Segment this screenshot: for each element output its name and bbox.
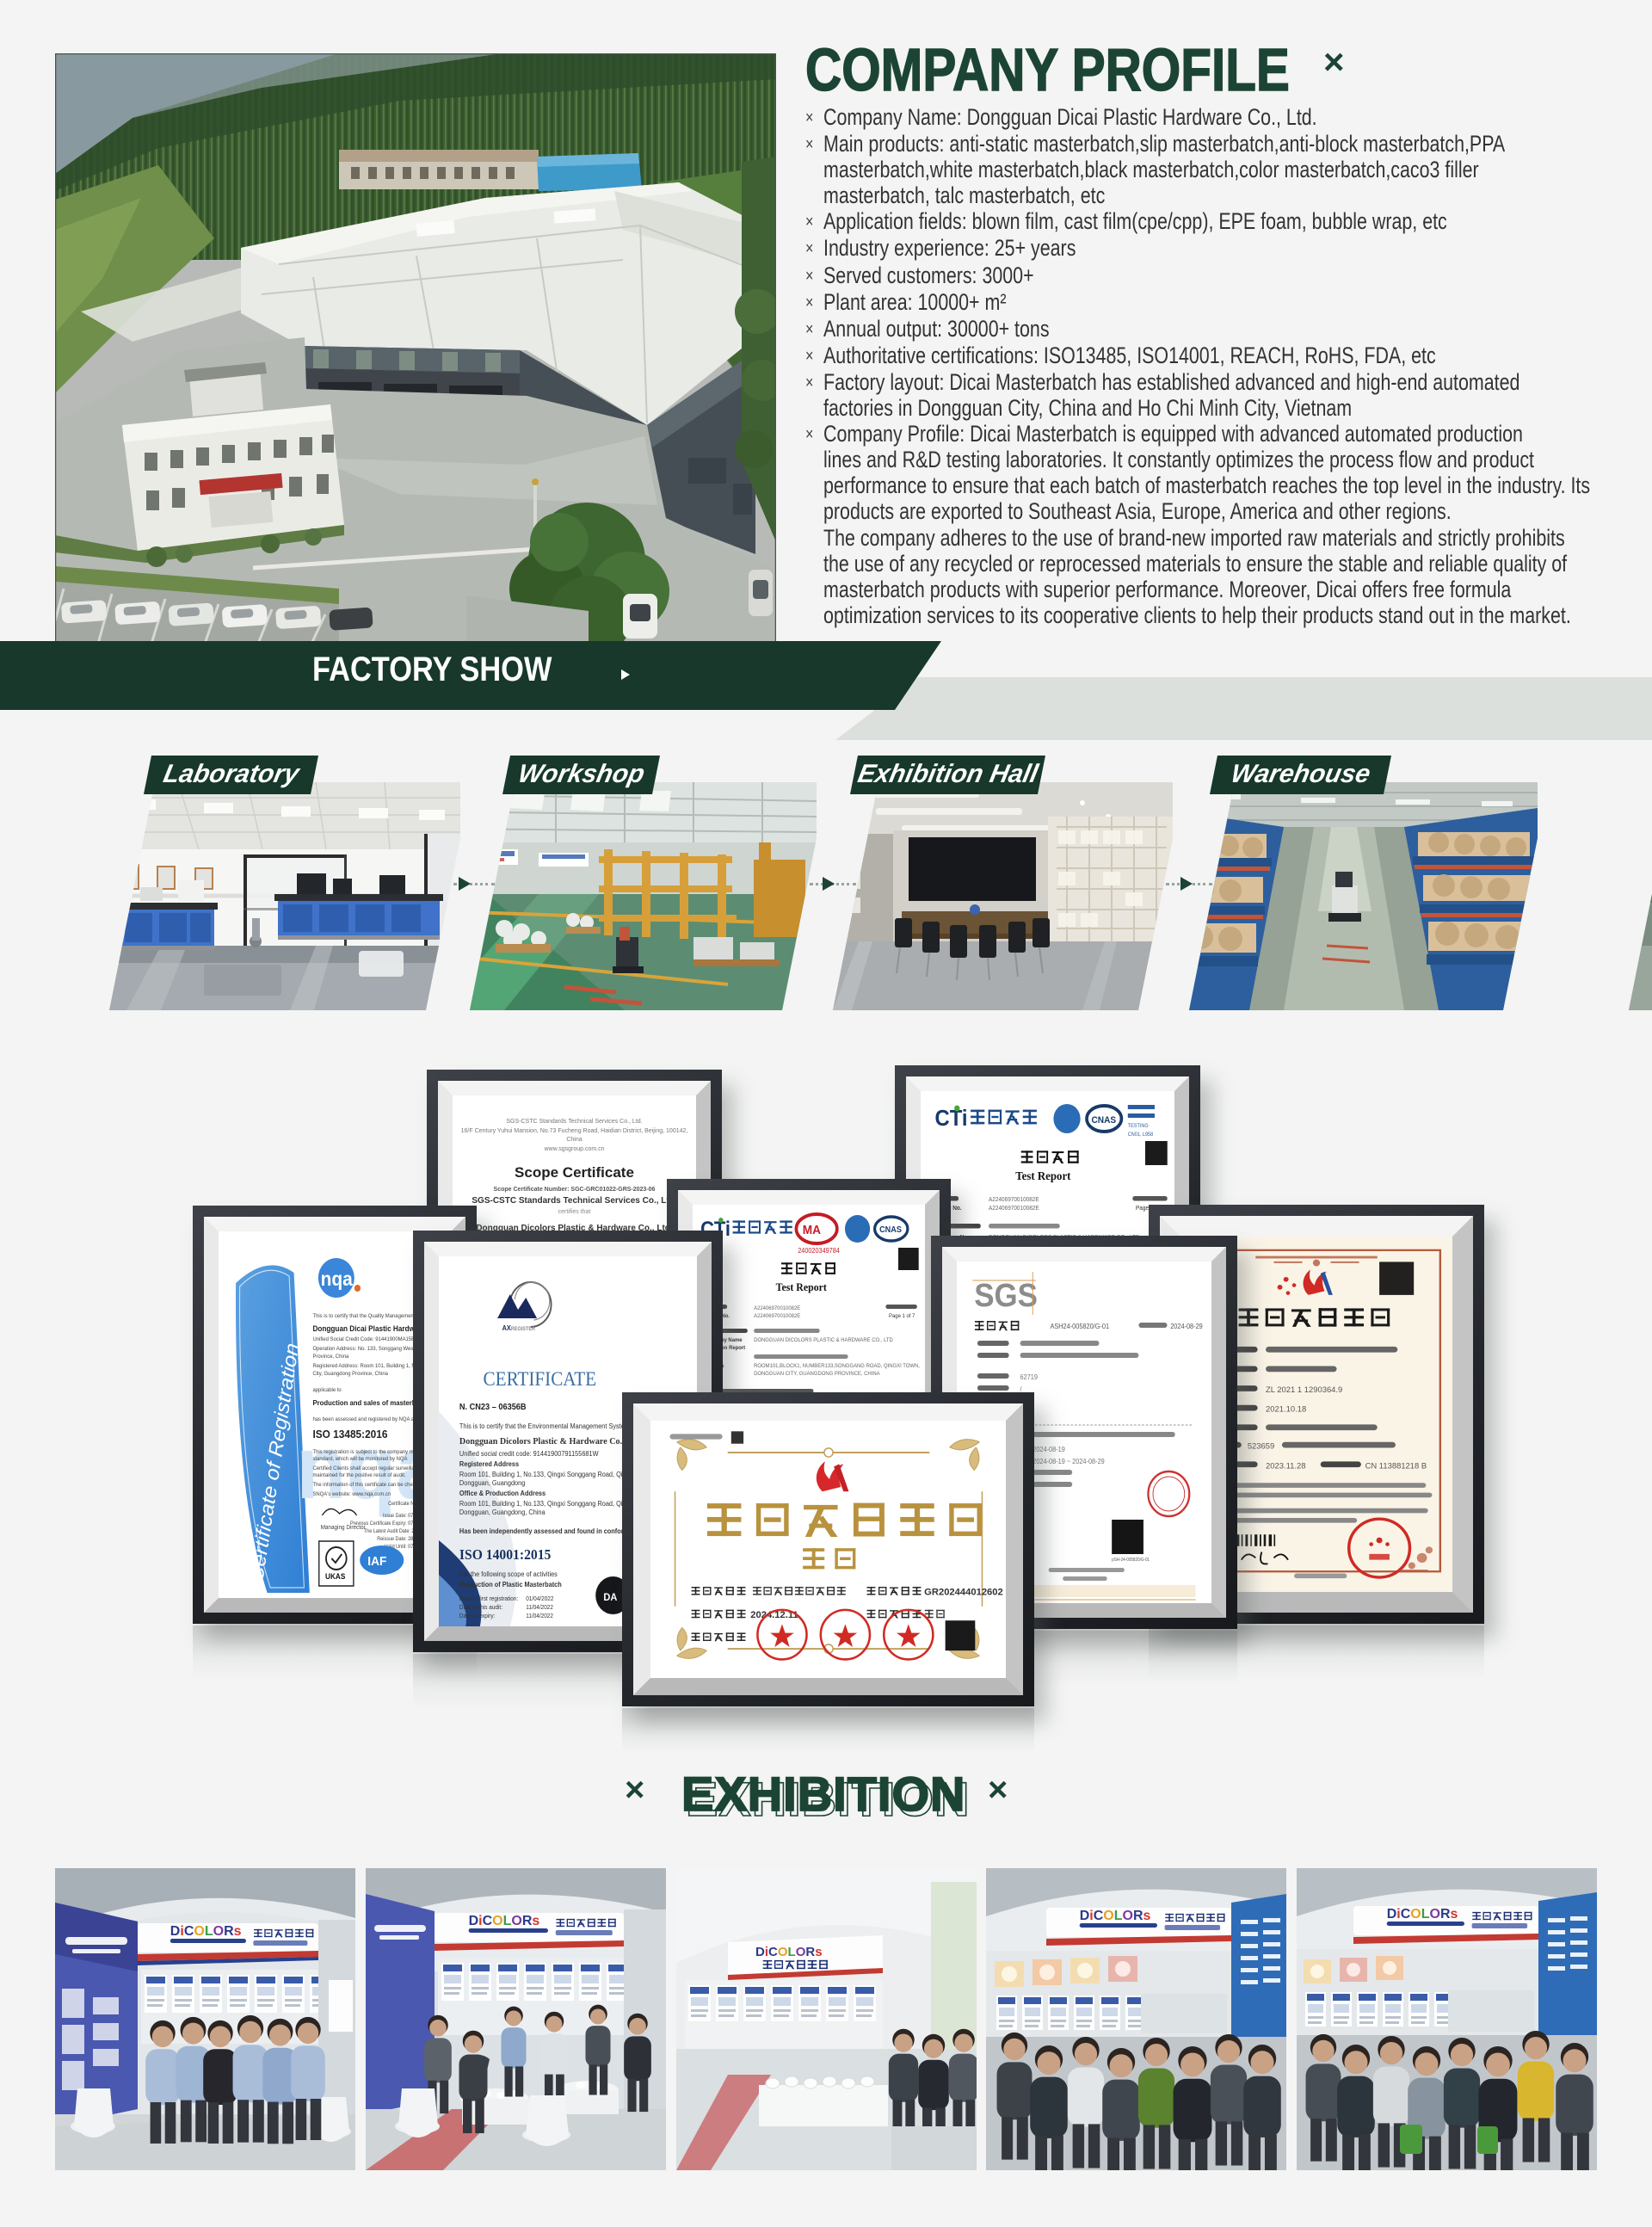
- svg-text:11/04/2022: 11/04/2022: [526, 1613, 553, 1619]
- svg-text:A22406970010082E: A22406970010082E: [989, 1206, 1039, 1212]
- svg-text:Test Report: Test Report: [1015, 1169, 1071, 1183]
- svg-text:Dongguan, Guangdong, China: Dongguan, Guangdong, China: [459, 1508, 546, 1516]
- svg-text:standard, which will be monito: standard, which will be monitored by NQA: [312, 1456, 408, 1462]
- svg-text:2023.11.28: 2023.11.28: [1266, 1461, 1305, 1470]
- svg-text:AXREGISTER: AXREGISTER: [502, 1324, 536, 1332]
- svg-text:A22406970010082E: A22406970010082E: [754, 1313, 800, 1319]
- svg-text:ASH24-005820/G-01: ASH24-005820/G-01: [1050, 1323, 1109, 1330]
- svg-text:Test Report: Test Report: [776, 1281, 828, 1294]
- svg-text:ISO 13485:2016: ISO 13485:2016: [312, 1428, 387, 1441]
- svg-text:01/04/2022: 01/04/2022: [526, 1596, 553, 1602]
- svg-text:523659: 523659: [1248, 1442, 1274, 1451]
- svg-text:GR202444012602: GR202444012602: [924, 1587, 1003, 1597]
- svg-text:DiCOLORs: DiCOLORs: [1080, 1909, 1151, 1923]
- svg-text:11/04/2022: 11/04/2022: [526, 1605, 553, 1611]
- svg-text:N. CN23 – 06356B: N. CN23 – 06356B: [459, 1403, 527, 1412]
- svg-text:Unified social credit code: 91: Unified social credit code: 914419007911…: [459, 1450, 599, 1458]
- svg-text:This is to certify that the En: This is to certify that the Environmenta…: [459, 1422, 638, 1430]
- svg-text:Office & Production Address: Office & Production Address: [459, 1490, 546, 1497]
- svg-text:CNAS: CNAS: [1092, 1115, 1117, 1126]
- svg-text:Province, China: Province, China: [312, 1354, 348, 1360]
- svg-text:ISO 14001:2015: ISO 14001:2015: [459, 1545, 551, 1563]
- svg-text:applicable to: applicable to: [312, 1387, 342, 1393]
- svg-text:A22406970010082E: A22406970010082E: [754, 1305, 800, 1311]
- svg-text:DiCOLORs: DiCOLORs: [469, 1914, 540, 1928]
- svg-text:DiCOLORs: DiCOLORs: [170, 1924, 242, 1939]
- svg-text:Production of Plastic Masterba: Production of Plastic Masterbatch: [459, 1581, 562, 1589]
- svg-text:UKAS: UKAS: [325, 1572, 345, 1581]
- svg-text:ROOM101,BLOCK1, NUMBER133,SONG: ROOM101,BLOCK1, NUMBER133,SONGGANG ROAD,…: [754, 1363, 920, 1369]
- svg-text:2024-08-19 ~ 2024-08-29: 2024-08-19 ~ 2024-08-29: [1032, 1458, 1104, 1465]
- svg-text:CNAS: CNAS: [879, 1225, 902, 1235]
- svg-text:DA: DA: [603, 1593, 618, 1603]
- svg-text:CERTIFICATE: CERTIFICATE: [484, 1367, 597, 1390]
- svg-text:TESTING: TESTING: [1128, 1124, 1149, 1129]
- svg-text:maintained for the positive re: maintained for the positive result of au…: [312, 1472, 405, 1478]
- svg-text:CN01, L958: CN01, L958: [1128, 1132, 1153, 1138]
- svg-text:240020349784: 240020349784: [798, 1247, 840, 1255]
- svg-text:IAF: IAF: [367, 1554, 386, 1569]
- svg-text:MA: MA: [803, 1223, 821, 1237]
- svg-text:DONGGUAN DICOLORS PLASTIC & HA: DONGGUAN DICOLORS PLASTIC & HARDWARE CO.…: [754, 1337, 893, 1343]
- svg-text:nqa: nqa: [321, 1268, 354, 1290]
- svg-text:Page 1 of 7: Page 1 of 7: [889, 1313, 915, 1319]
- svg-text:CTi: CTi: [935, 1106, 968, 1131]
- svg-text:pSH-24-005820/G-01: pSH-24-005820/G-01: [1112, 1558, 1150, 1563]
- svg-text:Dongguan Dicolors Plastic & Ha: Dongguan Dicolors Plastic & Hardware Co.…: [459, 1437, 640, 1447]
- svg-text:Dongguan, Guangdong: Dongguan, Guangdong: [459, 1479, 525, 1487]
- svg-text:62719: 62719: [1020, 1373, 1038, 1381]
- svg-text:DONGGUAN CITY, GUANGDONG PROVI: DONGGUAN CITY, GUANGDONG PROVINCE, CHINA: [754, 1371, 880, 1377]
- svg-text:DiCOLORs: DiCOLORs: [1387, 1907, 1458, 1922]
- svg-text:Registered Address: Registered Address: [459, 1460, 519, 1468]
- svg-text:A22406970010082E: A22406970010082E: [989, 1197, 1039, 1203]
- svg-text:Date of first registration:: Date of first registration:: [459, 1596, 518, 1602]
- svg-text:2021.10.18: 2021.10.18: [1266, 1405, 1306, 1414]
- svg-text:2024-08-19: 2024-08-19: [1032, 1446, 1065, 1453]
- svg-text:Date of expiry:: Date of expiry:: [459, 1613, 496, 1619]
- svg-text:2024-08-29: 2024-08-29: [1170, 1323, 1203, 1330]
- svg-text:CN 113881218 B: CN 113881218 B: [1365, 1461, 1427, 1470]
- svg-text:SGS: SGS: [974, 1277, 1038, 1314]
- svg-text:SNQA's website: www.nqa.com.cn: SNQA's website: www.nqa.com.cn: [312, 1491, 391, 1497]
- svg-text:For the following scope of act: For the following scope of activities: [459, 1570, 558, 1578]
- svg-text:City, Guangdong Province, Chin: City, Guangdong Province, China: [312, 1371, 388, 1377]
- svg-text:ZL 2021 1 1290364.9: ZL 2021 1 1290364.9: [1266, 1385, 1342, 1394]
- svg-text:DiCOLORs: DiCOLORs: [755, 1945, 823, 1959]
- svg-text:Date of this audit:: Date of this audit:: [459, 1605, 502, 1611]
